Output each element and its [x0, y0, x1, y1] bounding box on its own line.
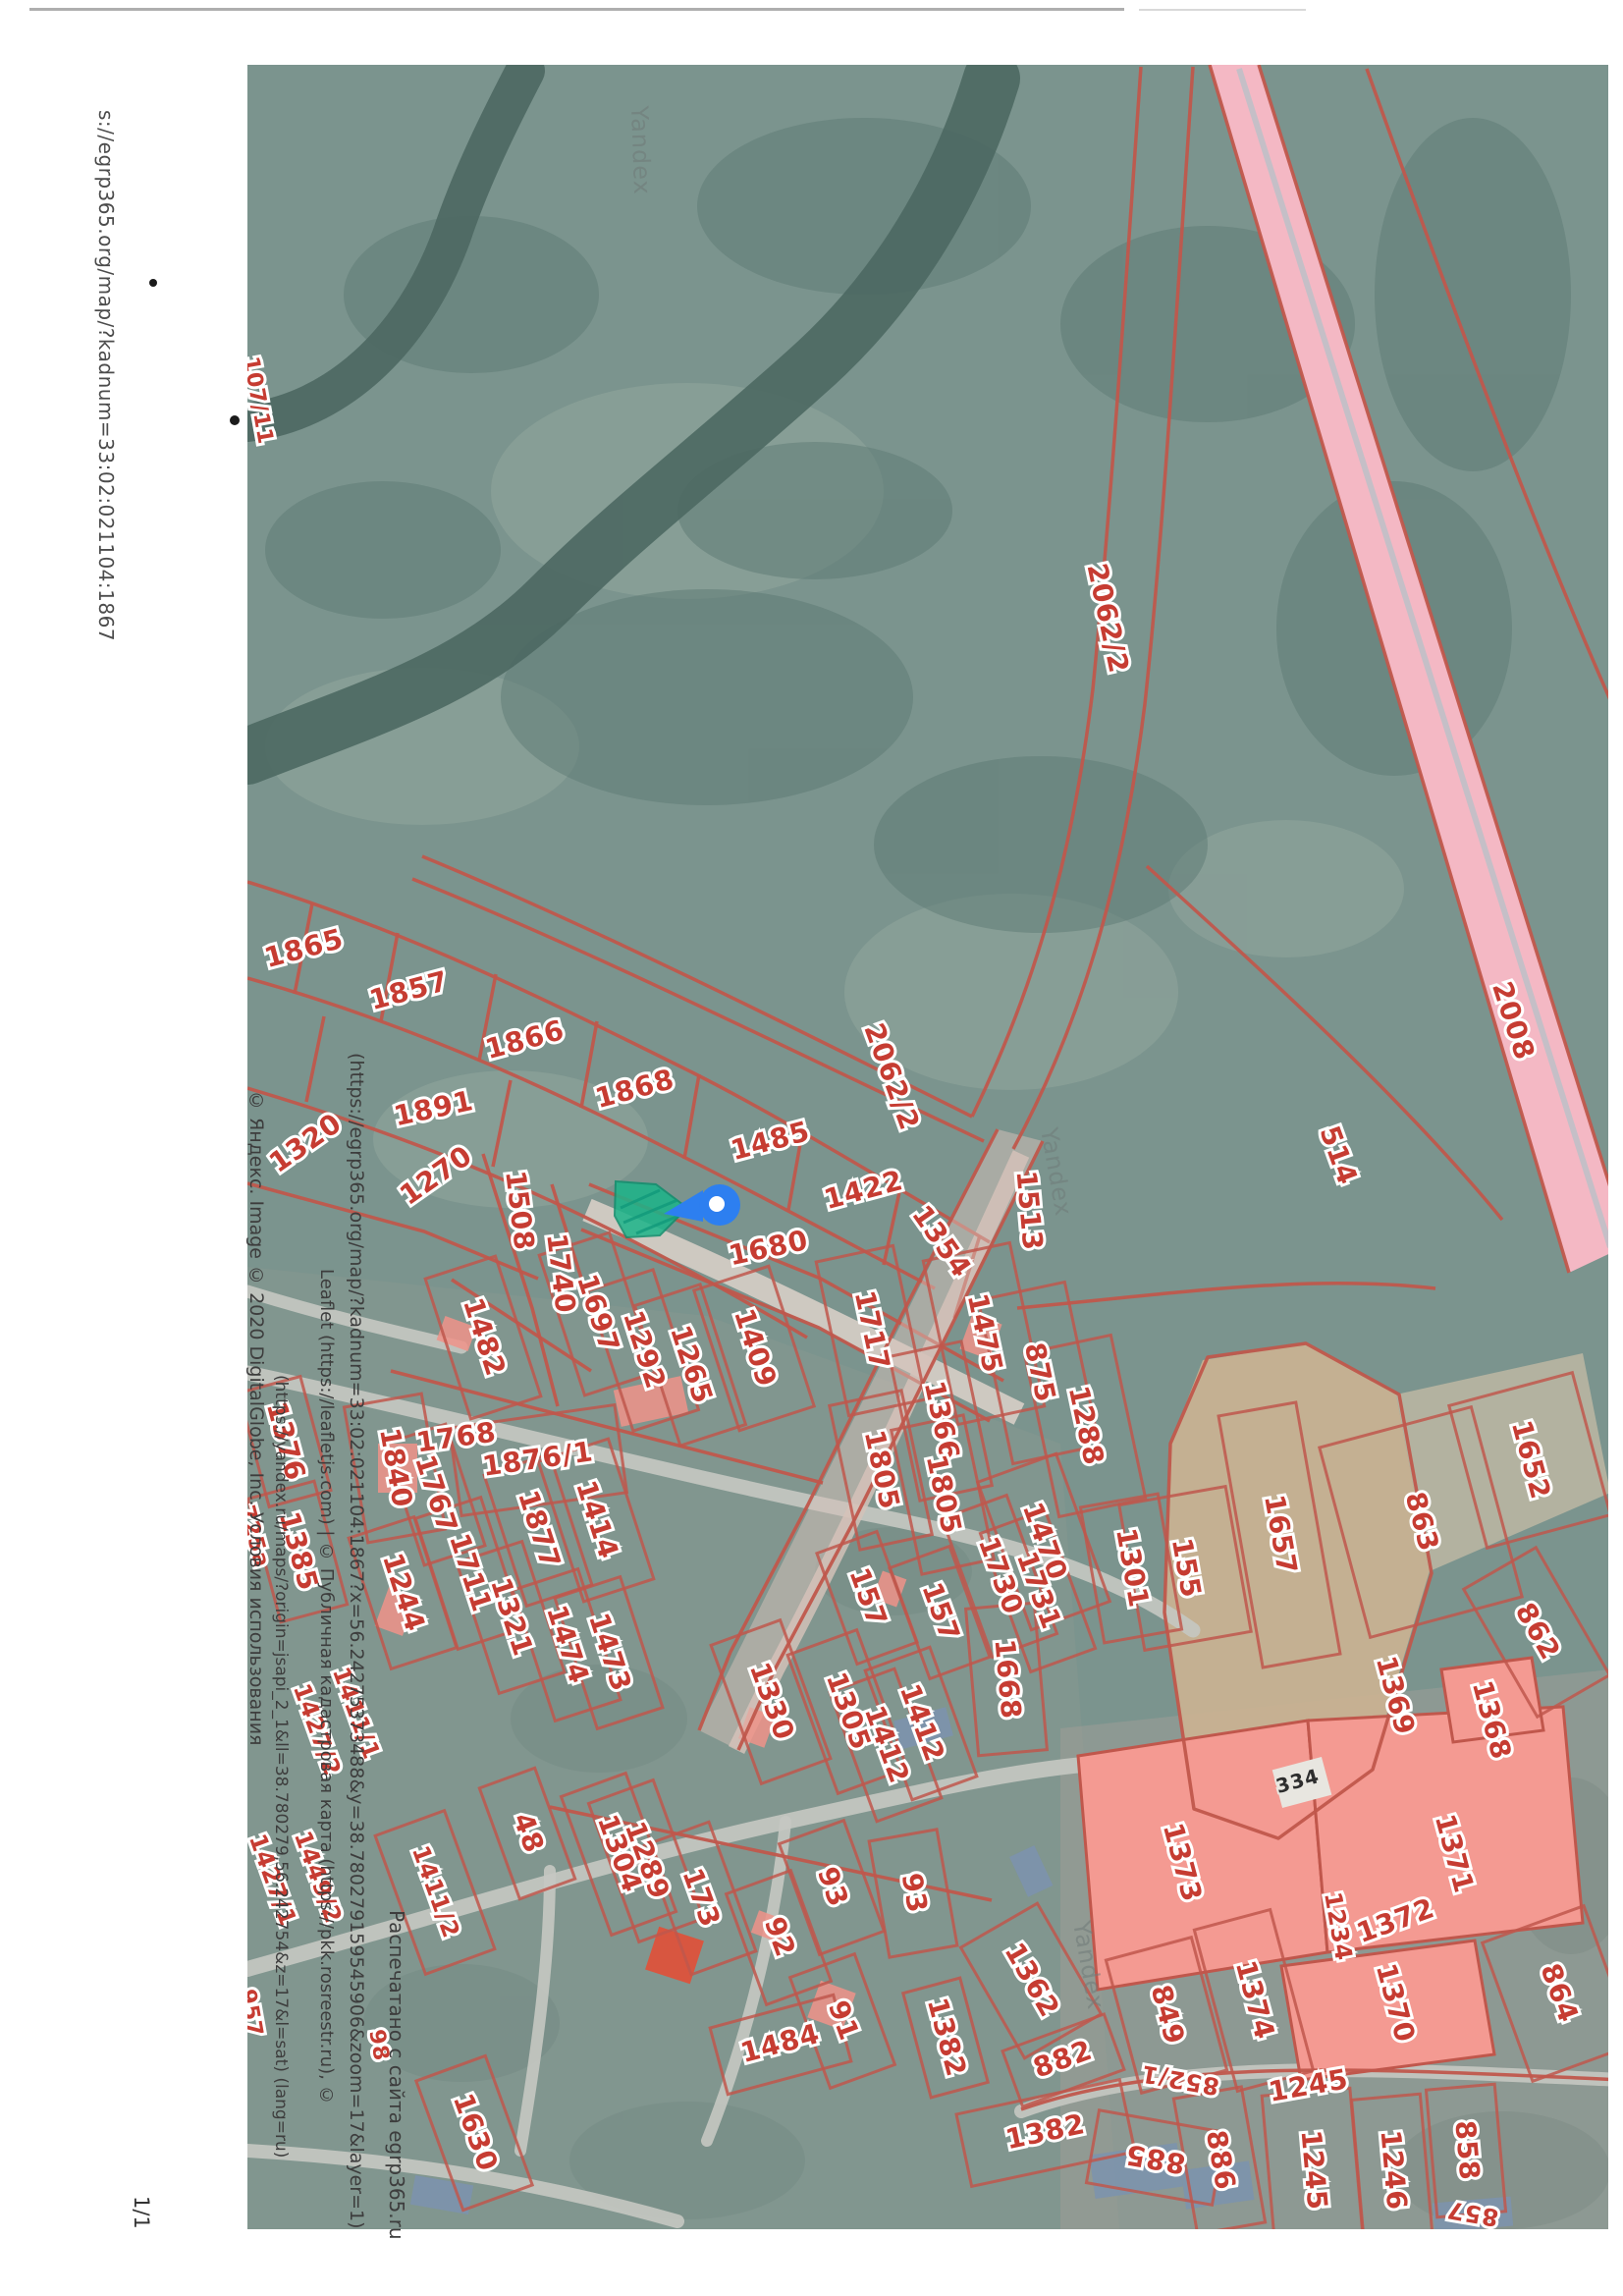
- scan-speck: [230, 415, 240, 425]
- attribution-yandex-url: (https://yandex.ru/maps/?origin=jsapi_2_…: [271, 1375, 291, 2158]
- browser-print-url: s://egrp365.org/map/?kadnum=33:02:021104…: [94, 110, 118, 641]
- scanned-cadastral-map-page: YandexYandexYandex 107/112062/2200851420…: [0, 0, 1623, 2296]
- satellite-map: YandexYandexYandex 107/112062/2200851420…: [234, 65, 1623, 2253]
- parcel-label: 93: [895, 1871, 935, 1916]
- attribution-printed-from: Распечатано с сайта egrp365.ru: [385, 1910, 408, 2240]
- yandex-watermark: Yandex: [625, 104, 656, 195]
- attribution-yandex: © Яндекс. Image © 2020 DigitalGlobe, Inc…: [245, 1090, 267, 1745]
- scan-speck: [149, 279, 157, 287]
- page-number: 1/1: [130, 2196, 153, 2229]
- scan-line: [1139, 9, 1306, 11]
- parcel-label: 858: [1448, 2119, 1486, 2182]
- map-canvas: YandexYandexYandex 107/112062/2200851420…: [0, 0, 1623, 2296]
- attribution-egrp-url: (https://egrp365.org/map/?kadnum=33:02:0…: [346, 1053, 367, 2229]
- scan-line: [29, 8, 1124, 11]
- attribution-leaflet-pkk: Leaflet (https://leafletjs.com) | © Публ…: [316, 1269, 337, 2106]
